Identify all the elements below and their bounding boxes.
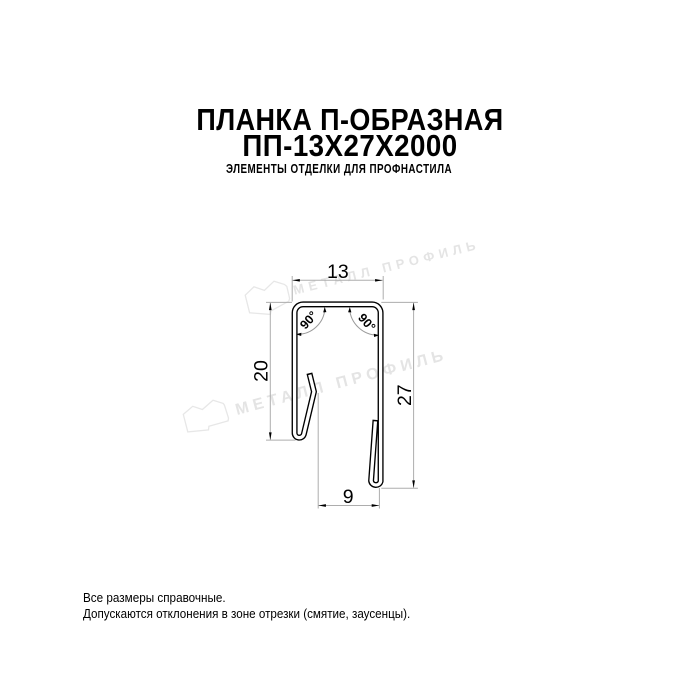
svg-text:МЕТАЛЛ ПРОФИЛЬ: МЕТАЛЛ ПРОФИЛЬ bbox=[292, 237, 482, 298]
svg-text:13: 13 bbox=[327, 261, 349, 283]
svg-text:27: 27 bbox=[394, 384, 416, 406]
svg-text:20: 20 bbox=[251, 360, 273, 382]
svg-text:90°: 90° bbox=[355, 311, 378, 334]
svg-text:9: 9 bbox=[343, 486, 354, 508]
svg-text:90°: 90° bbox=[297, 309, 320, 332]
